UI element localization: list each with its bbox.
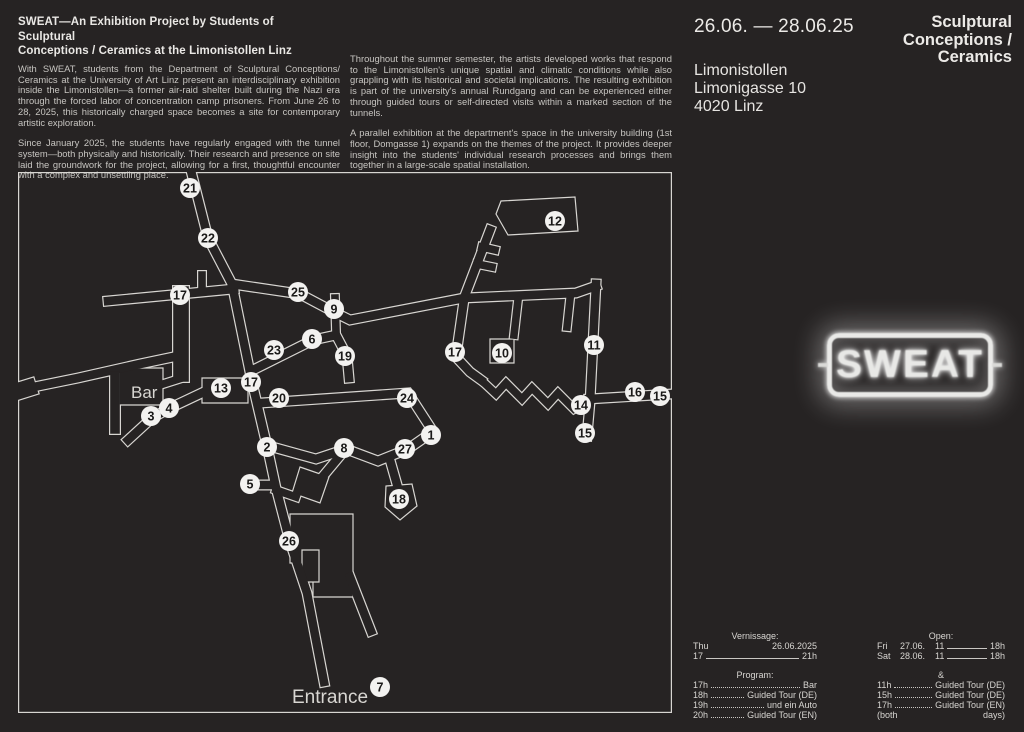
svg-text:25: 25 xyxy=(291,286,305,300)
vernissage-date: 26.06.2025 xyxy=(772,641,817,651)
svg-text:1: 1 xyxy=(428,429,435,443)
tour-row-label: Guided Tour (DE) xyxy=(935,690,1005,700)
station-17: 17 xyxy=(241,372,261,392)
vernissage-heading: Vernissage: xyxy=(693,631,817,641)
tunnel-map: BarEntrance21221725923619131720241710121… xyxy=(18,172,672,713)
station-17: 17 xyxy=(170,285,190,305)
tunnel-map-svg: BarEntrance21221725923619131720241710121… xyxy=(18,172,672,713)
vernissage-to: 21h xyxy=(802,651,817,661)
room-12 xyxy=(496,197,578,235)
program-heading: Program: xyxy=(693,670,817,680)
station-19: 19 xyxy=(335,346,355,366)
vernissage-from: 17 xyxy=(693,651,703,661)
tour-row-time: 15h xyxy=(877,690,892,700)
station-15: 15 xyxy=(650,386,670,406)
dot-leader xyxy=(711,697,744,698)
svg-text:26: 26 xyxy=(282,535,296,549)
dot-leader xyxy=(711,717,744,718)
tour-row-time: 11h xyxy=(877,680,891,690)
station-3: 3 xyxy=(141,406,161,426)
station-1: 1 xyxy=(421,425,441,445)
tours-note-left: (both xyxy=(877,710,898,720)
station-4: 4 xyxy=(159,398,179,418)
open-rows: Fri27.06.1118hSat28.06.1118h xyxy=(877,641,1005,661)
department-line3: Ceramics xyxy=(903,49,1012,67)
details-column: Throughout the summer semester, the arti… xyxy=(350,54,672,181)
poster-title-line2: Conceptions / Ceramics at the Limonistol… xyxy=(18,44,334,59)
program-row-label: Guided Tour (DE) xyxy=(747,690,817,700)
svg-text:15: 15 xyxy=(578,427,592,441)
dot-leader xyxy=(711,687,800,688)
details-paragraph-1: Throughout the summer semester, the arti… xyxy=(350,54,672,118)
svg-text:23: 23 xyxy=(267,344,281,358)
station-8: 8 xyxy=(334,438,354,458)
svg-text:6: 6 xyxy=(309,333,316,347)
program-row-label: Guided Tour (EN) xyxy=(747,710,817,720)
vernissage-program-schedule: Vernissage: Thu 26.06.2025 17 21h Progra… xyxy=(693,631,817,720)
svg-text:19: 19 xyxy=(338,350,352,364)
tours-heading: & xyxy=(877,670,1005,680)
station-9: 9 xyxy=(324,299,344,319)
svg-text:14: 14 xyxy=(574,399,588,413)
event-dates: 26.06. — 28.06.25 xyxy=(694,16,854,38)
svg-text:11: 11 xyxy=(587,339,600,353)
program-row: 20hGuided Tour (EN) xyxy=(693,710,817,720)
tour-row-time: 17h xyxy=(877,700,892,710)
venue-address: Limonistollen Limonigasse 10 4020 Linz xyxy=(694,62,806,116)
program-row-time: 17h xyxy=(693,680,708,690)
svg-text:15: 15 xyxy=(653,390,667,404)
station-16: 16 xyxy=(625,382,645,402)
poster-title: SWEAT—An Exhibition Project by Students … xyxy=(18,15,334,59)
open-to: 18h xyxy=(990,641,1005,651)
sign-mount-right xyxy=(992,363,1002,367)
station-12: 12 xyxy=(545,211,565,231)
station-10: 10 xyxy=(492,343,512,363)
intro-paragraph-1: With SWEAT, students from the Department… xyxy=(18,64,340,128)
station-5: 5 xyxy=(240,474,260,494)
svg-text:5: 5 xyxy=(247,478,254,492)
svg-text:17: 17 xyxy=(448,346,462,360)
open-to: 18h xyxy=(990,651,1005,661)
station-6: 6 xyxy=(302,329,322,349)
tour-row-label: Guided Tour (DE) xyxy=(935,680,1005,690)
open-date: 28.06. xyxy=(900,651,932,661)
station-7: 7 xyxy=(370,677,390,697)
open-from: 11 xyxy=(935,651,944,661)
tour-rows: 11hGuided Tour (DE)15hGuided Tour (DE)17… xyxy=(877,680,1005,710)
svg-text:4: 4 xyxy=(166,402,173,416)
program-row-time: 18h xyxy=(693,690,708,700)
svg-text:2: 2 xyxy=(264,441,271,455)
station-21: 21 xyxy=(180,178,200,198)
station-15: 15 xyxy=(575,423,595,443)
station-24: 24 xyxy=(397,388,417,408)
station-14: 14 xyxy=(571,395,591,415)
svg-text:13: 13 xyxy=(214,382,228,396)
map-label-bar: Bar xyxy=(131,383,158,402)
station-11: 11 xyxy=(584,335,604,355)
tour-row: 11hGuided Tour (DE) xyxy=(877,680,1005,690)
dot-leader xyxy=(895,697,932,698)
station-13: 13 xyxy=(211,378,231,398)
svg-text:21: 21 xyxy=(183,182,197,196)
station-23: 23 xyxy=(264,340,284,360)
program-row: 19hund ein Auto xyxy=(693,700,817,710)
svg-text:7: 7 xyxy=(377,681,384,695)
department-line1: Sculptural xyxy=(903,14,1012,32)
svg-text:3: 3 xyxy=(148,410,155,424)
station-20: 20 xyxy=(269,388,289,408)
dot-leader xyxy=(895,707,932,708)
tours-note-right: days) xyxy=(983,710,1005,720)
open-date: 27.06. xyxy=(900,641,932,651)
svg-text:27: 27 xyxy=(398,443,412,457)
program-row-label: und ein Auto xyxy=(767,700,817,710)
corridor-floors xyxy=(18,172,672,682)
svg-text:9: 9 xyxy=(331,303,338,317)
svg-text:22: 22 xyxy=(201,232,215,246)
svg-text:18: 18 xyxy=(392,493,406,507)
rule-line xyxy=(947,648,987,649)
map-label-entrance: Entrance xyxy=(292,687,368,708)
program-rows: 17hBar18hGuided Tour (DE)19hund ein Auto… xyxy=(693,680,817,720)
open-row: Sat28.06.1118h xyxy=(877,651,1005,661)
sweat-neon-sign: SWEAT xyxy=(827,333,993,397)
opening-hours-schedule: Open: Fri27.06.1118hSat28.06.1118h & 11h… xyxy=(877,631,1005,720)
svg-text:16: 16 xyxy=(628,386,642,400)
tour-row-label: Guided Tour (EN) xyxy=(935,700,1005,710)
address-line1: Limonistollen xyxy=(694,62,806,80)
poster: { "page": { "bg": "#262323", "heading_co… xyxy=(0,0,1024,732)
address-line3: 4020 Linz xyxy=(694,98,806,116)
vernissage-day: Thu xyxy=(693,641,709,651)
department-name: Sculptural Conceptions / Ceramics xyxy=(903,14,1012,67)
vernissage-hours-row: 17 21h xyxy=(693,651,817,661)
svg-text:20: 20 xyxy=(272,392,286,406)
details-paragraph-2: A parallel exhibition at the department'… xyxy=(350,128,672,171)
svg-text:8: 8 xyxy=(341,442,348,456)
dot-leader xyxy=(894,687,932,688)
svg-text:17: 17 xyxy=(173,289,187,303)
open-day: Fri xyxy=(877,641,897,651)
program-row-label: Bar xyxy=(803,680,817,690)
department-line2: Conceptions / xyxy=(903,32,1012,50)
station-17: 17 xyxy=(445,342,465,362)
open-heading: Open: xyxy=(877,631,1005,641)
station-26: 26 xyxy=(279,531,299,551)
sign-label: SWEAT xyxy=(836,343,984,387)
tour-row: 17hGuided Tour (EN) xyxy=(877,700,1005,710)
station-22: 22 xyxy=(198,228,218,248)
address-line2: Limonigasse 10 xyxy=(694,80,806,98)
station-25: 25 xyxy=(288,282,308,302)
sign-mount-left xyxy=(818,363,828,367)
program-row: 18hGuided Tour (DE) xyxy=(693,690,817,700)
svg-text:12: 12 xyxy=(548,215,562,229)
station-2: 2 xyxy=(257,437,277,457)
station-18: 18 xyxy=(389,489,409,509)
poster-title-line1: SWEAT—An Exhibition Project by Students … xyxy=(18,15,334,44)
vernissage-day-row: Thu 26.06.2025 xyxy=(693,641,817,651)
open-row: Fri27.06.1118h xyxy=(877,641,1005,651)
program-row-time: 19h xyxy=(693,700,708,710)
open-from: 11 xyxy=(935,641,944,651)
rule-line xyxy=(947,658,987,659)
open-day: Sat xyxy=(877,651,897,661)
svg-text:10: 10 xyxy=(495,347,509,361)
svg-text:17: 17 xyxy=(244,376,258,390)
program-row: 17hBar xyxy=(693,680,817,690)
tours-note-row: (both days) xyxy=(877,710,1005,720)
dot-leader xyxy=(711,707,764,708)
svg-text:24: 24 xyxy=(400,392,414,406)
station-27: 27 xyxy=(395,439,415,459)
tour-row: 15hGuided Tour (DE) xyxy=(877,690,1005,700)
rule-line xyxy=(706,658,799,659)
program-row-time: 20h xyxy=(693,710,708,720)
